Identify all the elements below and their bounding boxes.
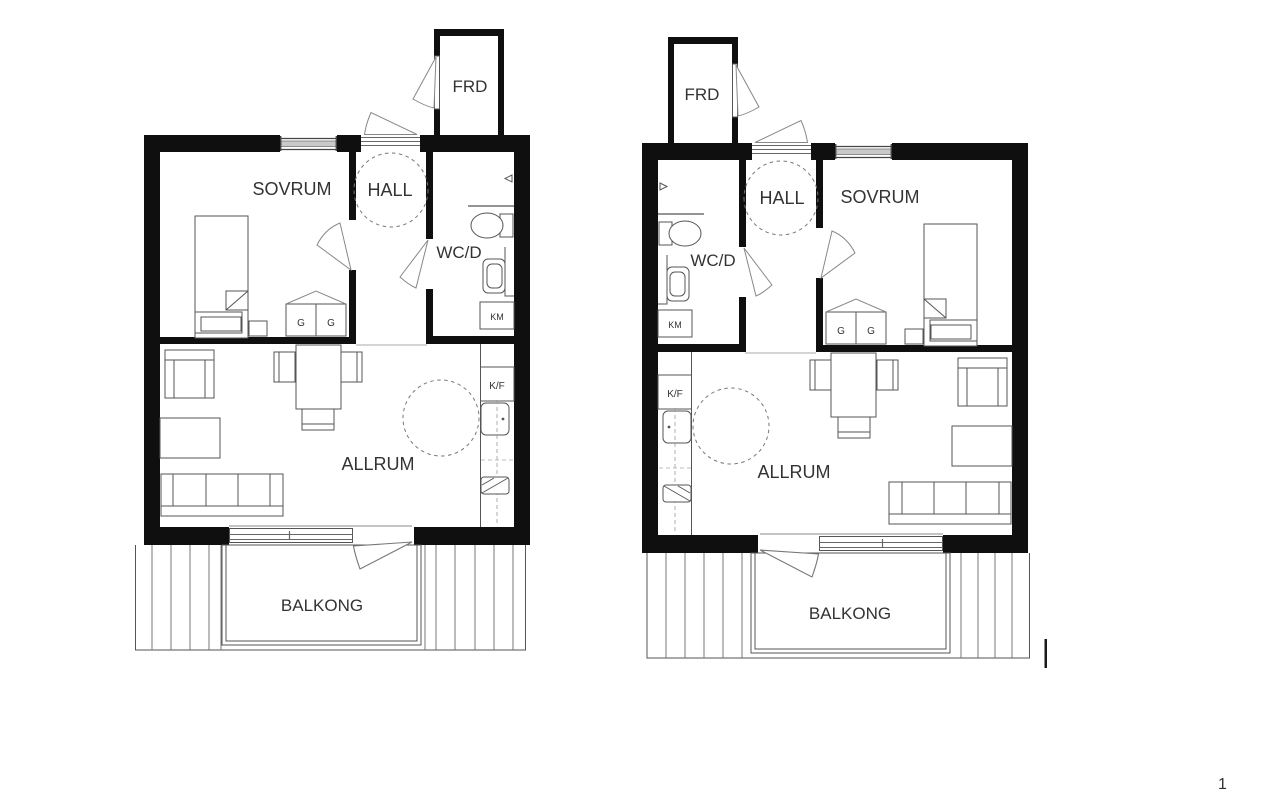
svg-text:FRD: FRD [685, 85, 720, 104]
svg-text:1: 1 [1218, 776, 1227, 793]
svg-text:K/F: K/F [667, 389, 683, 400]
svg-text:SOVRUM: SOVRUM [252, 179, 331, 199]
svg-text:KM: KM [668, 320, 682, 330]
svg-text:FRD: FRD [453, 77, 488, 96]
svg-text:HALL: HALL [759, 188, 804, 208]
svg-text:WC/D: WC/D [436, 243, 481, 262]
svg-text:G: G [837, 326, 845, 337]
svg-text:BALKONG: BALKONG [809, 604, 891, 623]
svg-text:G: G [327, 318, 335, 329]
svg-text:ALLRUM: ALLRUM [341, 454, 414, 474]
svg-text:BALKONG: BALKONG [281, 596, 363, 615]
svg-text:K/F: K/F [489, 381, 505, 392]
svg-text:ALLRUM: ALLRUM [757, 462, 830, 482]
svg-text:WC/D: WC/D [690, 251, 735, 270]
svg-text:SOVRUM: SOVRUM [840, 187, 919, 207]
svg-text:G: G [867, 326, 875, 337]
svg-text:G: G [297, 318, 305, 329]
svg-text:KM: KM [490, 312, 504, 322]
svg-text:HALL: HALL [367, 180, 412, 200]
